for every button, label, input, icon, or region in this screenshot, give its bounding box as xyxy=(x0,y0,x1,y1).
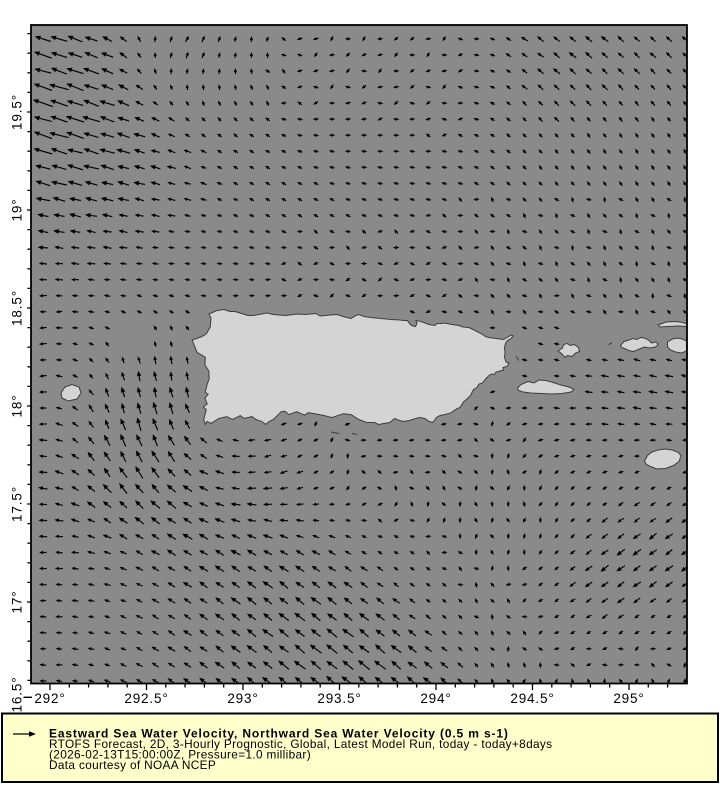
svg-text:16.5°: 16.5° xyxy=(10,677,25,713)
svg-text:293.5°: 293.5° xyxy=(317,691,361,706)
svg-text:292°: 292° xyxy=(34,691,65,706)
svg-text:295°: 295° xyxy=(613,691,644,706)
svg-text:19°: 19° xyxy=(10,199,25,222)
svg-text:17.5°: 17.5° xyxy=(10,486,25,522)
svg-text:18.5°: 18.5° xyxy=(10,290,25,326)
svg-text:18°: 18° xyxy=(10,395,25,418)
svg-text:293°: 293° xyxy=(227,691,258,706)
svg-text:294.5°: 294.5° xyxy=(510,691,554,706)
svg-text:17°: 17° xyxy=(10,591,25,614)
svg-text:294°: 294° xyxy=(420,691,451,706)
svg-text:19.5°: 19.5° xyxy=(10,94,25,130)
svg-text:Data courtesy of NOAA NCEP: Data courtesy of NOAA NCEP xyxy=(49,758,216,772)
svg-text:292.5°: 292.5° xyxy=(124,691,168,706)
